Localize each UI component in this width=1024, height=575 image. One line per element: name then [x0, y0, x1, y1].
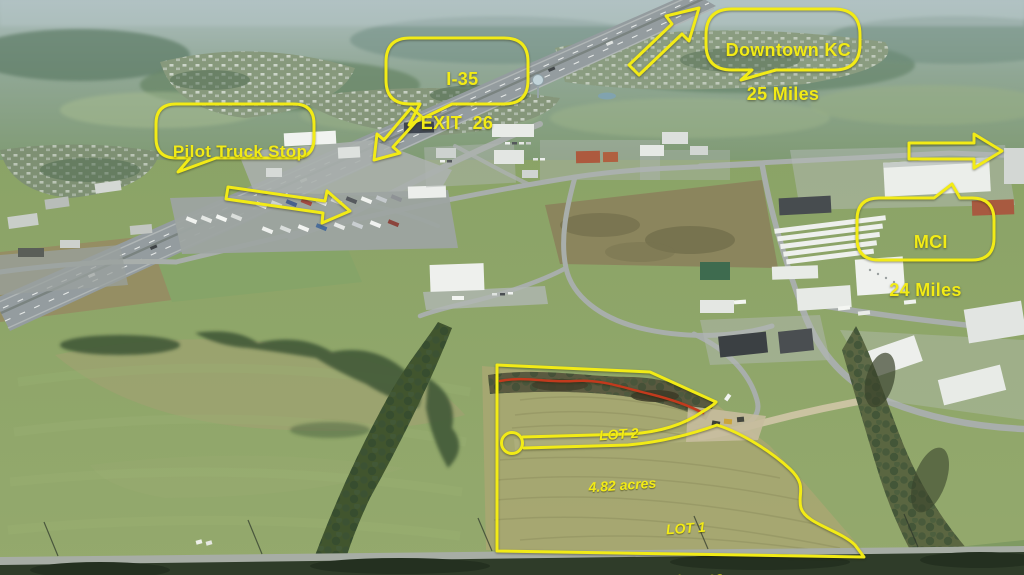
callout-mci-line2: 24 Miles — [857, 278, 994, 302]
pond — [598, 93, 616, 100]
callout-i35-line2: EXIT 26 — [386, 112, 528, 134]
callout-i35-exit: I-35 EXIT 26 — [386, 46, 528, 156]
callout-mci: MCI 24 Miles — [857, 206, 994, 326]
callout-downtown-line2: 25 Miles — [706, 83, 860, 105]
callout-downtown-line1: Downtown KC — [726, 40, 851, 60]
callout-i35-line1: I-35 — [446, 69, 478, 89]
lot1-label: LOT 1 5.49 acres — [618, 482, 756, 575]
callout-mci-line1: MCI — [914, 232, 948, 252]
callout-pilot-truck-stop: Pilot Truck Stop — [156, 119, 314, 163]
lot1-name: LOT 1 — [620, 516, 751, 542]
aerial-photo-root: I-35 EXIT 26 Pilot Truck Stop Downtown K… — [0, 0, 1024, 575]
callout-downtown-kc: Downtown KC 25 Miles — [706, 17, 860, 127]
callout-pilot-line1: Pilot Truck Stop — [173, 142, 307, 161]
lot2-name: LOT 2 — [553, 422, 684, 448]
lot1-acreage: 5.49 acres — [624, 566, 755, 575]
